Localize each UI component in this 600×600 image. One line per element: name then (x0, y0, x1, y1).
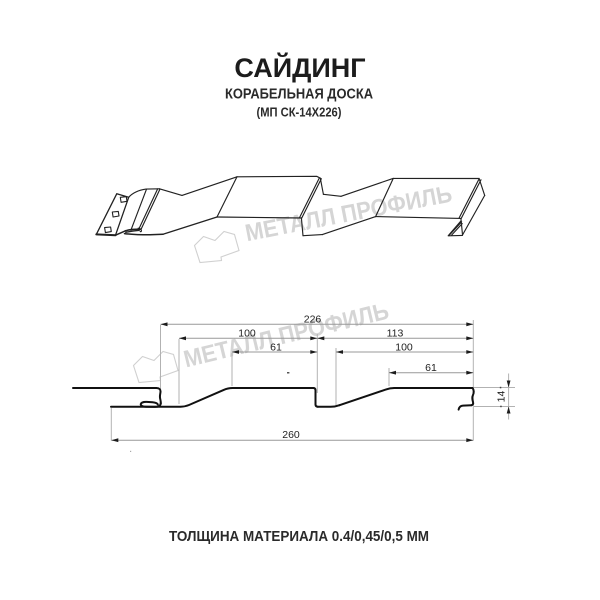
svg-text:61: 61 (425, 362, 437, 374)
svg-text:100: 100 (238, 328, 256, 340)
svg-text:МЕТАЛЛ ПРОФИЛЬ: МЕТАЛЛ ПРОФИЛЬ (243, 181, 454, 248)
svg-text:260: 260 (282, 429, 300, 441)
svg-text:ТОЛЩИНА МАТЕРИАЛА 0.4/0,45/0,5: ТОЛЩИНА МАТЕРИАЛА 0.4/0,45/0,5 ММ (169, 528, 429, 545)
svg-text:КОРАБЕЛЬНАЯ ДОСКА: КОРАБЕЛЬНАЯ ДОСКА (225, 87, 373, 103)
svg-text:МЕТАЛЛ ПРОФИЛЬ: МЕТАЛЛ ПРОФИЛЬ (181, 298, 391, 374)
svg-text:100: 100 (395, 341, 413, 353)
svg-text:14: 14 (495, 391, 507, 403)
svg-text:САЙДИНГ: САЙДИНГ (234, 52, 365, 83)
svg-text:113: 113 (387, 328, 404, 340)
svg-text:(МП СК-14Х226): (МП СК-14Х226) (257, 105, 342, 119)
svg-text:61: 61 (270, 341, 282, 353)
svg-text:226: 226 (304, 313, 322, 325)
